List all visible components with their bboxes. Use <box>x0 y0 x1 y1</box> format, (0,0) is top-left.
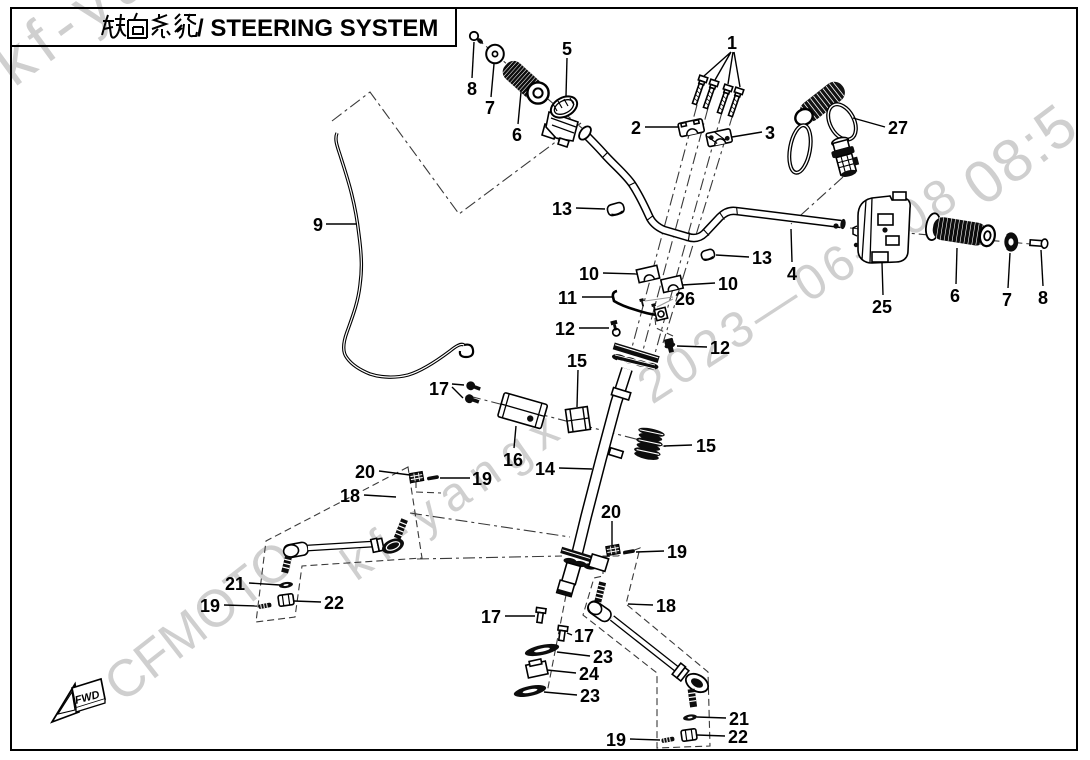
svg-text:4: 4 <box>787 264 797 284</box>
svg-text:5: 5 <box>562 39 572 59</box>
svg-text:16: 16 <box>503 450 523 470</box>
svg-text:12: 12 <box>710 338 730 358</box>
svg-text:2: 2 <box>631 118 641 138</box>
svg-text:20: 20 <box>355 462 375 482</box>
svg-text:19: 19 <box>606 730 626 750</box>
svg-text:13: 13 <box>752 248 772 268</box>
svg-text:11: 11 <box>558 288 577 308</box>
svg-text:20: 20 <box>601 502 621 522</box>
svg-text:26: 26 <box>675 289 695 309</box>
svg-text:18: 18 <box>340 486 360 506</box>
svg-text:19: 19 <box>200 596 220 616</box>
svg-text:/ STEERING SYSTEM: / STEERING SYSTEM <box>197 15 438 42</box>
svg-text:21: 21 <box>729 709 749 729</box>
svg-text:21: 21 <box>225 574 245 594</box>
svg-text:22: 22 <box>324 593 344 613</box>
svg-text:22: 22 <box>728 727 748 747</box>
svg-text:24: 24 <box>579 664 599 684</box>
svg-text:7: 7 <box>485 98 495 118</box>
svg-text:3: 3 <box>765 123 775 143</box>
svg-text:18: 18 <box>656 596 676 616</box>
svg-text:1: 1 <box>727 33 737 53</box>
svg-text:15: 15 <box>567 351 587 371</box>
svg-text:19: 19 <box>667 542 687 562</box>
svg-text:10: 10 <box>718 274 738 294</box>
svg-text:15: 15 <box>696 436 716 456</box>
svg-text:6: 6 <box>512 125 522 145</box>
svg-text:19: 19 <box>472 469 492 489</box>
svg-text:8: 8 <box>1038 288 1048 308</box>
svg-text:10: 10 <box>579 264 599 284</box>
svg-text:23: 23 <box>580 686 600 706</box>
svg-text:7: 7 <box>1002 290 1012 310</box>
svg-text:13: 13 <box>552 199 572 219</box>
svg-text:6: 6 <box>950 286 960 306</box>
svg-text:17: 17 <box>574 626 594 646</box>
svg-text:8: 8 <box>467 79 477 99</box>
svg-text:17: 17 <box>429 379 449 399</box>
svg-text:25: 25 <box>872 297 892 317</box>
svg-text:12: 12 <box>555 319 575 339</box>
svg-text:9: 9 <box>313 215 323 235</box>
svg-text:27: 27 <box>888 118 908 138</box>
svg-text:17: 17 <box>481 607 501 627</box>
svg-text:14: 14 <box>535 459 555 479</box>
